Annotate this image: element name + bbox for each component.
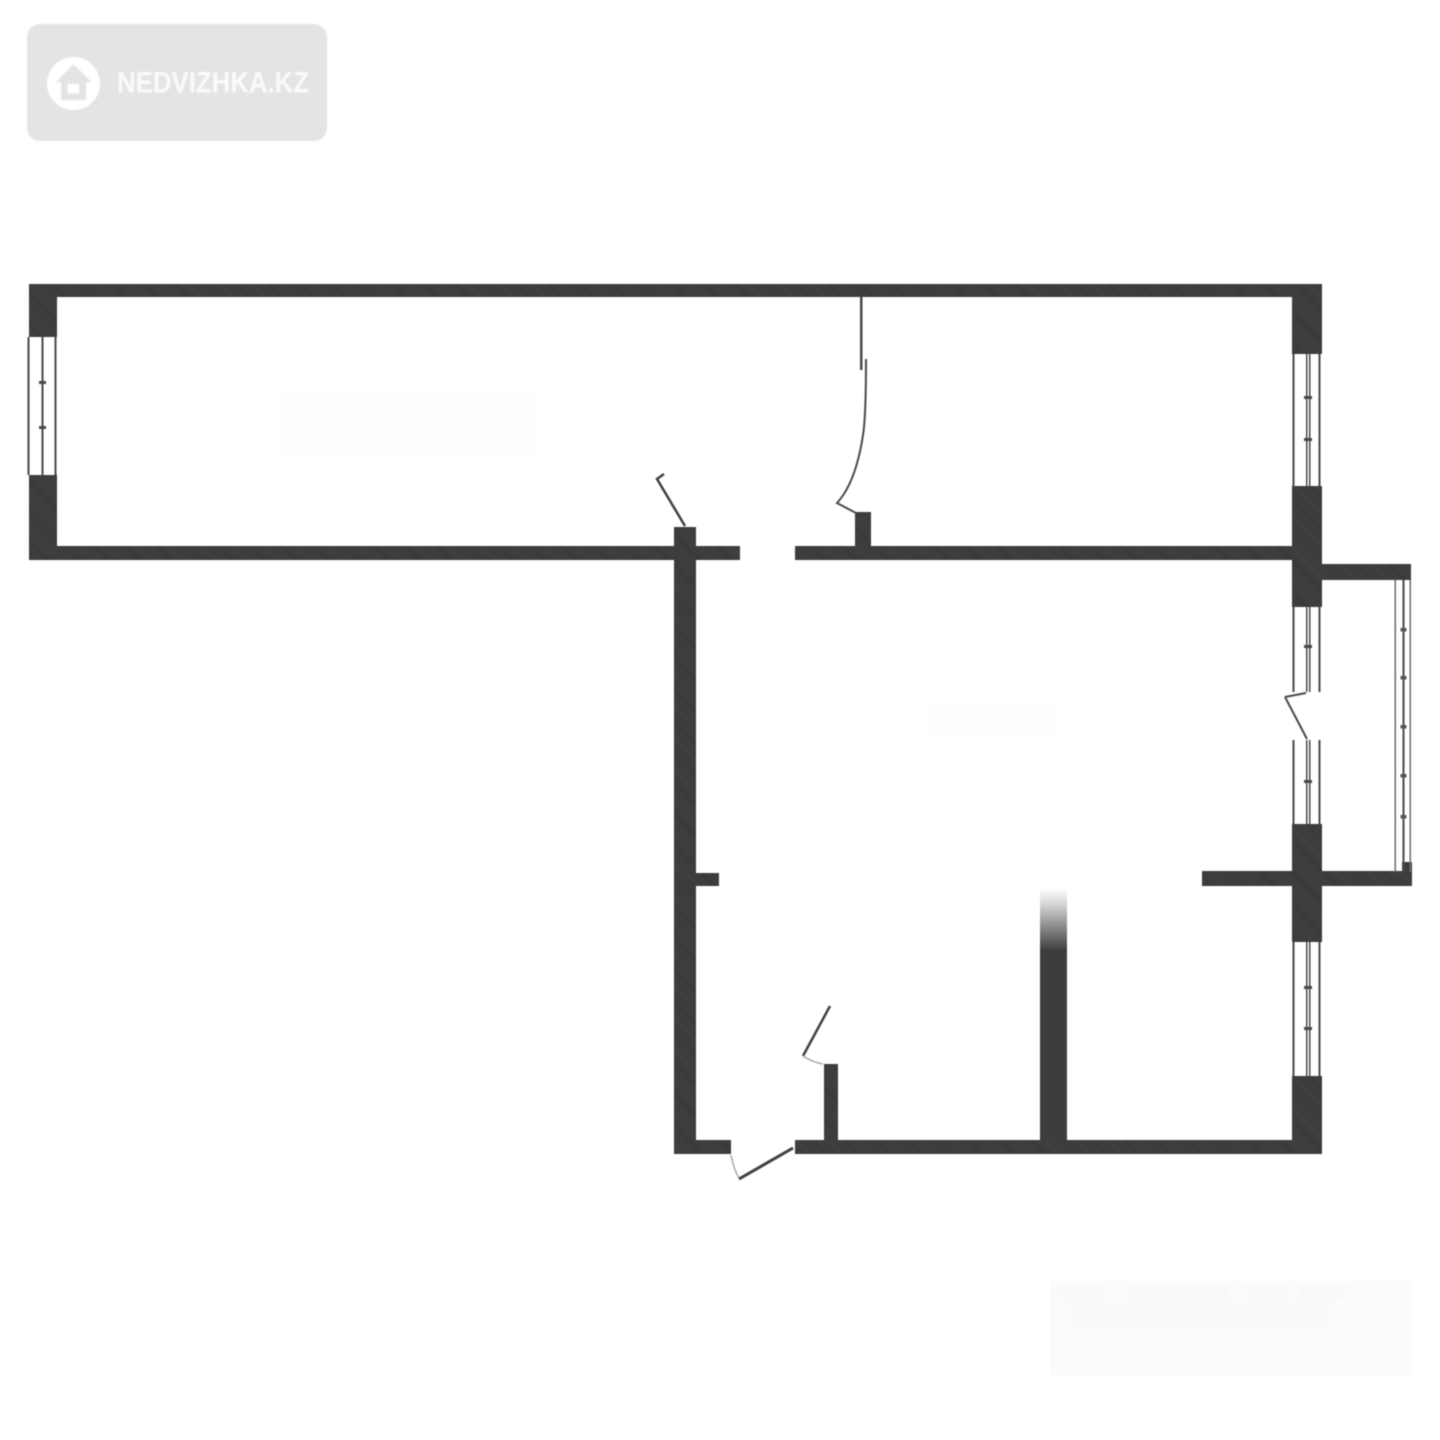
svg-text:NEDVIZHKA.KZ: NEDVIZHKA.KZ — [117, 67, 309, 100]
